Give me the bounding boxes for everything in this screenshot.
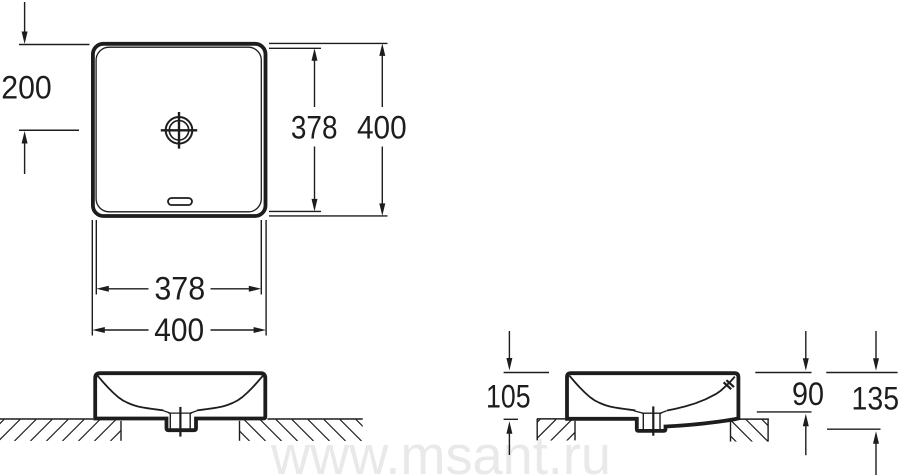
svg-text:200: 200 — [1, 70, 52, 106]
svg-text:400: 400 — [357, 109, 407, 145]
svg-text:378: 378 — [291, 109, 338, 145]
svg-text:135: 135 — [852, 380, 900, 416]
svg-text:105: 105 — [486, 379, 531, 415]
svg-text:400: 400 — [154, 312, 204, 348]
svg-text:378: 378 — [154, 271, 205, 307]
svg-text:90: 90 — [792, 376, 824, 412]
